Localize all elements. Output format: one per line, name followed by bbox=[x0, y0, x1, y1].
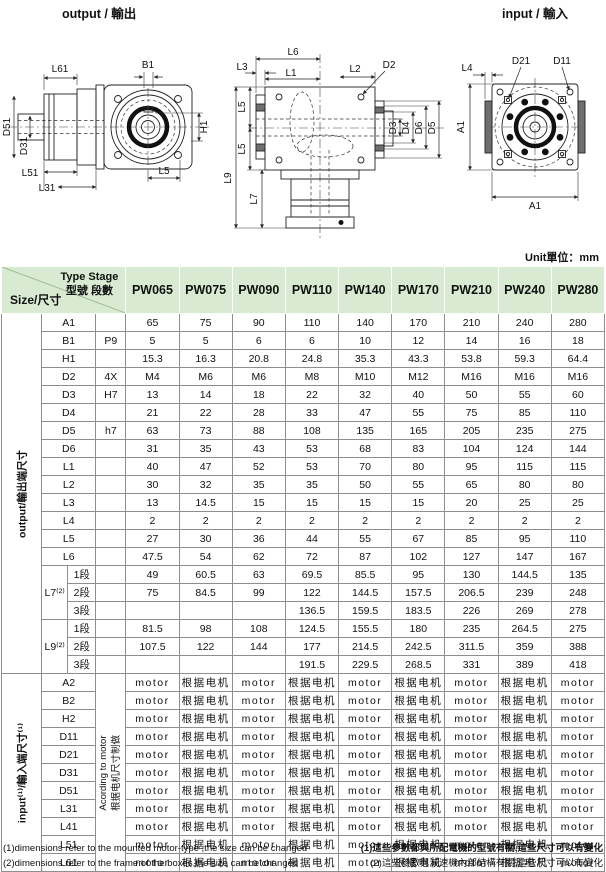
value-cell: motor bbox=[232, 746, 285, 764]
row-label-D31: D31 bbox=[42, 764, 96, 782]
value-cell: 根据电机 bbox=[285, 692, 338, 710]
value-cell: 239 bbox=[498, 584, 551, 602]
row-qualifier bbox=[96, 404, 126, 422]
value-cell: motor bbox=[445, 710, 498, 728]
value-cell: 32 bbox=[179, 476, 232, 494]
value-cell: 155.5 bbox=[339, 620, 392, 638]
column-header-PW075: PW075 bbox=[179, 267, 232, 314]
value-cell: M16 bbox=[498, 368, 551, 386]
value-cell: 50 bbox=[339, 476, 392, 494]
dim-label-L2: L2 bbox=[349, 64, 361, 75]
technical-drawings: output / 輸出 input / 輸入 L61 D51 D31 bbox=[0, 0, 606, 252]
footnote-en-2: (2)dimensions refer to the frame of the … bbox=[3, 857, 307, 872]
value-cell: 22 bbox=[285, 386, 338, 404]
value-cell: motor bbox=[339, 728, 392, 746]
value-cell: 52 bbox=[232, 458, 285, 476]
value-cell: 35 bbox=[285, 476, 338, 494]
value-cell: 191.5 bbox=[285, 656, 338, 674]
input-title: input / 輸入 bbox=[502, 6, 568, 21]
value-cell: 53.8 bbox=[445, 350, 498, 368]
value-cell: 87 bbox=[339, 548, 392, 566]
row-label-D6: D6 bbox=[42, 440, 96, 458]
value-cell: 2 bbox=[285, 512, 338, 530]
value-cell: 根据电机 bbox=[392, 692, 445, 710]
value-cell: 根据电机 bbox=[285, 746, 338, 764]
value-cell: motor bbox=[339, 782, 392, 800]
value-cell: 85.5 bbox=[339, 566, 392, 584]
value-cell: motor bbox=[232, 710, 285, 728]
value-cell: motor bbox=[126, 674, 179, 692]
value-cell: 根据电机 bbox=[392, 782, 445, 800]
row-label-A1: A1 bbox=[42, 314, 96, 332]
value-cell: motor bbox=[126, 782, 179, 800]
value-cell: 68 bbox=[339, 440, 392, 458]
value-cell: 15 bbox=[232, 494, 285, 512]
type-stage-label: Type Stage型號 段數 bbox=[61, 270, 119, 299]
value-cell: 108 bbox=[232, 620, 285, 638]
value-cell: 144.5 bbox=[339, 584, 392, 602]
value-cell: 127 bbox=[445, 548, 498, 566]
value-cell: motor bbox=[232, 674, 285, 692]
value-cell: 15 bbox=[392, 494, 445, 512]
value-cell: 35.3 bbox=[339, 350, 392, 368]
value-cell: 6 bbox=[285, 332, 338, 350]
value-cell: motor bbox=[551, 710, 604, 728]
value-cell: 331 bbox=[445, 656, 498, 674]
row-qualifier bbox=[96, 656, 126, 674]
value-cell: 40 bbox=[126, 458, 179, 476]
value-cell: 20 bbox=[445, 494, 498, 512]
column-header-PW240: PW240 bbox=[498, 267, 551, 314]
dim-label-L31: L31 bbox=[39, 183, 56, 194]
value-cell: 140 bbox=[339, 314, 392, 332]
value-cell: motor bbox=[551, 764, 604, 782]
shaded-cell bbox=[179, 602, 232, 620]
value-cell: 根据电机 bbox=[179, 782, 232, 800]
footnote-zh-1: (1)這些參數都與所配電機的型號有關,這些尺寸可以有變化 bbox=[361, 842, 603, 857]
value-cell: 15 bbox=[339, 494, 392, 512]
value-cell: 16.3 bbox=[179, 350, 232, 368]
value-cell: 43.3 bbox=[392, 350, 445, 368]
value-cell: motor bbox=[339, 746, 392, 764]
value-cell: 73 bbox=[179, 422, 232, 440]
value-cell: 122 bbox=[179, 638, 232, 656]
value-cell: 2 bbox=[551, 512, 604, 530]
value-cell: 根据电机 bbox=[498, 764, 551, 782]
column-header-PW090: PW090 bbox=[232, 267, 285, 314]
value-cell: 157.5 bbox=[392, 584, 445, 602]
dim-label-H1: H1 bbox=[199, 120, 210, 133]
value-cell: 根据电机 bbox=[392, 674, 445, 692]
footnote-en-1: (1)dimensions refer to the mounted motor… bbox=[3, 842, 307, 857]
value-cell: M10 bbox=[339, 368, 392, 386]
dim-label-L5-upper: L5 bbox=[237, 101, 248, 113]
value-cell: motor bbox=[551, 674, 604, 692]
value-cell: 50 bbox=[445, 386, 498, 404]
dim-label-B1: B1 bbox=[142, 60, 155, 71]
value-cell: 135 bbox=[551, 566, 604, 584]
row-qualifier: h7 bbox=[96, 422, 126, 440]
value-cell: 31 bbox=[126, 440, 179, 458]
value-cell: 54 bbox=[179, 548, 232, 566]
value-cell: 27 bbox=[126, 530, 179, 548]
value-cell: 122 bbox=[285, 584, 338, 602]
value-cell: 99 bbox=[232, 584, 285, 602]
value-cell: 根据电机 bbox=[285, 800, 338, 818]
value-cell: 98 bbox=[179, 620, 232, 638]
value-cell: 根据电机 bbox=[498, 746, 551, 764]
row-label-D5: D5 bbox=[42, 422, 96, 440]
row-label-group: L9⁽²⁾ bbox=[42, 620, 68, 674]
value-cell: 85 bbox=[445, 530, 498, 548]
shaded-cell bbox=[126, 602, 179, 620]
value-cell: 根据电机 bbox=[179, 818, 232, 836]
value-cell: 67 bbox=[392, 530, 445, 548]
value-cell: 80 bbox=[551, 476, 604, 494]
value-cell: 269 bbox=[498, 602, 551, 620]
section-input-label: input⁽¹⁾/輸入端尺寸⁽¹⁾ bbox=[14, 722, 29, 822]
value-cell: motor bbox=[232, 818, 285, 836]
value-cell: 359 bbox=[498, 638, 551, 656]
value-cell: 264.5 bbox=[498, 620, 551, 638]
value-cell: 235 bbox=[498, 422, 551, 440]
value-cell: 21 bbox=[126, 404, 179, 422]
value-cell: motor bbox=[445, 800, 498, 818]
value-cell: 2 bbox=[392, 512, 445, 530]
value-cell: 33 bbox=[285, 404, 338, 422]
value-cell: 6 bbox=[232, 332, 285, 350]
value-cell: 75 bbox=[126, 584, 179, 602]
value-cell: 24.8 bbox=[285, 350, 338, 368]
row-label-D11: D11 bbox=[42, 728, 96, 746]
dim-label-D6: D6 bbox=[414, 121, 425, 134]
footnote-zh-2: (2)這些參數與減速機內部結構有關,這些尺寸可以有變化 bbox=[361, 857, 603, 872]
row-qualifier bbox=[96, 620, 126, 638]
value-cell: 根据电机 bbox=[179, 800, 232, 818]
row-label-H1: H1 bbox=[42, 350, 96, 368]
value-cell: 15 bbox=[285, 494, 338, 512]
value-cell: 205 bbox=[445, 422, 498, 440]
value-cell: 311.5 bbox=[445, 638, 498, 656]
value-cell: 根据电机 bbox=[392, 746, 445, 764]
value-cell: 95 bbox=[498, 530, 551, 548]
value-cell: 144.5 bbox=[498, 566, 551, 584]
value-cell: 242.5 bbox=[392, 638, 445, 656]
shaded-cell bbox=[179, 656, 232, 674]
section-output: output/輸出端尺寸 bbox=[2, 314, 42, 674]
value-cell: 418 bbox=[551, 656, 604, 674]
row-qualifier bbox=[96, 530, 126, 548]
value-cell: 63 bbox=[232, 566, 285, 584]
value-cell: 根据电机 bbox=[285, 728, 338, 746]
value-cell: 53 bbox=[285, 440, 338, 458]
value-cell: 根据电机 bbox=[285, 710, 338, 728]
dim-label-L1: L1 bbox=[285, 68, 297, 79]
row-label-B2: B2 bbox=[42, 692, 96, 710]
value-cell: 根据电机 bbox=[392, 818, 445, 836]
value-cell: 根据电机 bbox=[179, 710, 232, 728]
row-qualifier bbox=[96, 350, 126, 368]
value-cell: 389 bbox=[498, 656, 551, 674]
column-header-PW110: PW110 bbox=[285, 267, 338, 314]
dim-label-L4: L4 bbox=[461, 63, 473, 74]
value-cell: motor bbox=[232, 782, 285, 800]
stage-label: 3段 bbox=[68, 602, 96, 620]
value-cell: 13 bbox=[126, 386, 179, 404]
footnotes: (1)dimensions refer to the mounted motor… bbox=[3, 842, 603, 871]
value-cell: 根据电机 bbox=[179, 674, 232, 692]
value-cell: M16 bbox=[445, 368, 498, 386]
row-qualifier bbox=[96, 440, 126, 458]
value-cell: 25 bbox=[551, 494, 604, 512]
value-cell: 104 bbox=[445, 440, 498, 458]
value-cell: 2 bbox=[445, 512, 498, 530]
value-cell: 根据电机 bbox=[498, 800, 551, 818]
value-cell: 2 bbox=[232, 512, 285, 530]
value-cell: motor bbox=[339, 764, 392, 782]
row-label-D4: D4 bbox=[42, 404, 96, 422]
value-cell: 14 bbox=[179, 386, 232, 404]
value-cell: 2 bbox=[126, 512, 179, 530]
value-cell: 183.5 bbox=[392, 602, 445, 620]
value-cell: 47 bbox=[339, 404, 392, 422]
value-cell: 根据电机 bbox=[285, 764, 338, 782]
column-header-PW280: PW280 bbox=[551, 267, 604, 314]
value-cell: 18 bbox=[232, 386, 285, 404]
row-label-L2: L2 bbox=[42, 476, 96, 494]
value-cell: 53 bbox=[285, 458, 338, 476]
value-cell: 根据电机 bbox=[392, 764, 445, 782]
value-cell: 根据电机 bbox=[285, 674, 338, 692]
column-header-PW065: PW065 bbox=[126, 267, 179, 314]
value-cell: 47 bbox=[179, 458, 232, 476]
catalog-page: output / 輸出 input / 輸入 L61 D51 D31 bbox=[0, 0, 606, 872]
stage-label: 3段 bbox=[68, 656, 96, 674]
value-cell: 95 bbox=[392, 566, 445, 584]
dim-label-D11: D11 bbox=[553, 56, 571, 67]
value-cell: 80 bbox=[392, 458, 445, 476]
value-cell: 根据电机 bbox=[392, 710, 445, 728]
value-cell: motor bbox=[445, 746, 498, 764]
row-label-D3: D3 bbox=[42, 386, 96, 404]
value-cell: 72 bbox=[285, 548, 338, 566]
value-cell: 55 bbox=[392, 404, 445, 422]
row-qualifier bbox=[96, 584, 126, 602]
column-header-PW170: PW170 bbox=[392, 267, 445, 314]
value-cell: 64.4 bbox=[551, 350, 604, 368]
footnotes-en: (1)dimensions refer to the mounted motor… bbox=[3, 842, 307, 871]
dim-label-D51: D51 bbox=[2, 117, 13, 136]
input-drawing: L4 D21 D11 A1 A1 bbox=[456, 56, 585, 212]
value-cell: 根据电机 bbox=[179, 764, 232, 782]
value-cell: 144 bbox=[551, 440, 604, 458]
value-cell: motor bbox=[445, 782, 498, 800]
value-cell: 240 bbox=[498, 314, 551, 332]
stage-label: 1段 bbox=[68, 566, 96, 584]
shaded-cell bbox=[232, 656, 285, 674]
value-cell: motor bbox=[126, 800, 179, 818]
value-cell: 根据电机 bbox=[285, 818, 338, 836]
row-label-H2: H2 bbox=[42, 710, 96, 728]
value-cell: 35 bbox=[232, 476, 285, 494]
value-cell: 5 bbox=[126, 332, 179, 350]
shaded-cell bbox=[232, 602, 285, 620]
value-cell: 226 bbox=[445, 602, 498, 620]
row-qualifier bbox=[96, 602, 126, 620]
value-cell: 278 bbox=[551, 602, 604, 620]
value-cell: 214.5 bbox=[339, 638, 392, 656]
value-cell: motor bbox=[232, 764, 285, 782]
value-cell: 180 bbox=[392, 620, 445, 638]
value-cell: 144 bbox=[232, 638, 285, 656]
value-cell: 根据电机 bbox=[392, 728, 445, 746]
dim-label-D3: D3 bbox=[388, 121, 399, 134]
value-cell: motor bbox=[445, 674, 498, 692]
dim-label-L5-lower: L5 bbox=[237, 143, 248, 155]
value-cell: 124.5 bbox=[285, 620, 338, 638]
value-cell: 206.5 bbox=[445, 584, 498, 602]
value-cell: motor bbox=[126, 710, 179, 728]
value-cell: 70 bbox=[339, 458, 392, 476]
row-qualifier bbox=[96, 566, 126, 584]
spec-table: Type Stage型號 段數Size/尺寸PW065PW075PW090PW1… bbox=[1, 266, 605, 872]
dim-label-L3: L3 bbox=[236, 62, 248, 73]
value-cell: M4 bbox=[126, 368, 179, 386]
value-cell: 35 bbox=[179, 440, 232, 458]
dim-label-D31: D31 bbox=[19, 136, 30, 155]
row-label-L4: L4 bbox=[42, 512, 96, 530]
value-cell: 根据电机 bbox=[498, 710, 551, 728]
value-cell: 49 bbox=[126, 566, 179, 584]
value-cell: 根据电机 bbox=[498, 674, 551, 692]
value-cell: 85 bbox=[498, 404, 551, 422]
row-label-group: L7⁽²⁾ bbox=[42, 566, 68, 620]
value-cell: motor bbox=[551, 692, 604, 710]
value-cell: 14.5 bbox=[179, 494, 232, 512]
value-cell: 根据电机 bbox=[285, 782, 338, 800]
value-cell: motor bbox=[551, 728, 604, 746]
value-cell: 268.5 bbox=[392, 656, 445, 674]
value-cell: 根据电机 bbox=[498, 728, 551, 746]
value-cell: motor bbox=[232, 800, 285, 818]
value-cell: 177 bbox=[285, 638, 338, 656]
row-label-L5: L5 bbox=[42, 530, 96, 548]
value-cell: motor bbox=[445, 728, 498, 746]
stage-label: 2段 bbox=[68, 638, 96, 656]
value-cell: 275 bbox=[551, 422, 604, 440]
value-cell: M16 bbox=[551, 368, 604, 386]
section-output-label: output/輸出端尺寸 bbox=[14, 449, 29, 537]
value-cell: 280 bbox=[551, 314, 604, 332]
value-cell: 107.5 bbox=[126, 638, 179, 656]
value-cell: 25 bbox=[498, 494, 551, 512]
value-cell: 95 bbox=[445, 458, 498, 476]
dim-label-L6: L6 bbox=[287, 47, 299, 58]
value-cell: 136.5 bbox=[285, 602, 338, 620]
output-drawing: L61 D51 D31 L51 L31 bbox=[2, 60, 212, 194]
dim-label-D21: D21 bbox=[512, 56, 531, 67]
value-cell: 30 bbox=[179, 530, 232, 548]
value-cell: 130 bbox=[445, 566, 498, 584]
value-cell: 65 bbox=[126, 314, 179, 332]
value-cell: motor bbox=[445, 818, 498, 836]
value-cell: motor bbox=[339, 692, 392, 710]
value-cell: 根据电机 bbox=[392, 800, 445, 818]
value-cell: 32 bbox=[339, 386, 392, 404]
value-cell: 84.5 bbox=[179, 584, 232, 602]
dim-label-A1-left: A1 bbox=[456, 120, 467, 133]
row-label-D21: D21 bbox=[42, 746, 96, 764]
value-cell: 根据电机 bbox=[498, 782, 551, 800]
value-cell: M8 bbox=[285, 368, 338, 386]
value-cell: 60.5 bbox=[179, 566, 232, 584]
value-cell: 10 bbox=[339, 332, 392, 350]
value-cell: motor bbox=[445, 764, 498, 782]
value-cell: 248 bbox=[551, 584, 604, 602]
row-label-L3: L3 bbox=[42, 494, 96, 512]
footnotes-zh: (1)這些參數都與所配電機的型號有關,這些尺寸可以有變化 (2)這些參數與減速機… bbox=[361, 842, 603, 871]
value-cell: 135 bbox=[339, 422, 392, 440]
value-cell: 388 bbox=[551, 638, 604, 656]
value-cell: 59.3 bbox=[498, 350, 551, 368]
value-cell: 170 bbox=[392, 314, 445, 332]
value-cell: 43 bbox=[232, 440, 285, 458]
dim-label-L61: L61 bbox=[52, 64, 69, 75]
value-cell: 229.5 bbox=[339, 656, 392, 674]
value-cell: 13 bbox=[126, 494, 179, 512]
value-cell: 47.5 bbox=[126, 548, 179, 566]
value-cell: 110 bbox=[285, 314, 338, 332]
value-cell: motor bbox=[339, 710, 392, 728]
value-cell: M6 bbox=[179, 368, 232, 386]
value-cell: 81.5 bbox=[126, 620, 179, 638]
row-label-L31: L31 bbox=[42, 800, 96, 818]
row-label-D2: D2 bbox=[42, 368, 96, 386]
value-cell: motor bbox=[339, 800, 392, 818]
value-cell: 36 bbox=[232, 530, 285, 548]
value-cell: 124 bbox=[498, 440, 551, 458]
value-cell: motor bbox=[126, 728, 179, 746]
value-cell: 20.8 bbox=[232, 350, 285, 368]
value-cell: 22 bbox=[179, 404, 232, 422]
value-cell: 165 bbox=[392, 422, 445, 440]
value-cell: 18 bbox=[551, 332, 604, 350]
value-cell: 88 bbox=[232, 422, 285, 440]
value-cell: motor bbox=[551, 818, 604, 836]
row-label-L41: L41 bbox=[42, 818, 96, 836]
value-cell: 28 bbox=[232, 404, 285, 422]
value-cell: 14 bbox=[445, 332, 498, 350]
value-cell: 167 bbox=[551, 548, 604, 566]
dim-label-D4: D4 bbox=[401, 121, 412, 134]
gearbox-section-drawing: L6 L3 L1 L2 D2 L5 L5 bbox=[223, 47, 446, 238]
value-cell: 235 bbox=[445, 620, 498, 638]
column-header-PW140: PW140 bbox=[339, 267, 392, 314]
value-cell: 108 bbox=[285, 422, 338, 440]
shaded-cell bbox=[126, 656, 179, 674]
dim-label-A1-bottom: A1 bbox=[529, 201, 542, 212]
dim-label-L7: L7 bbox=[249, 193, 260, 205]
value-cell: 55 bbox=[339, 530, 392, 548]
table-corner-cell: Type Stage型號 段數Size/尺寸 bbox=[2, 267, 126, 314]
value-cell: M12 bbox=[392, 368, 445, 386]
row-qualifier bbox=[96, 548, 126, 566]
value-cell: 55 bbox=[498, 386, 551, 404]
row-qualifier bbox=[96, 314, 126, 332]
value-cell: motor bbox=[339, 818, 392, 836]
value-cell: motor bbox=[232, 728, 285, 746]
value-cell: motor bbox=[551, 746, 604, 764]
